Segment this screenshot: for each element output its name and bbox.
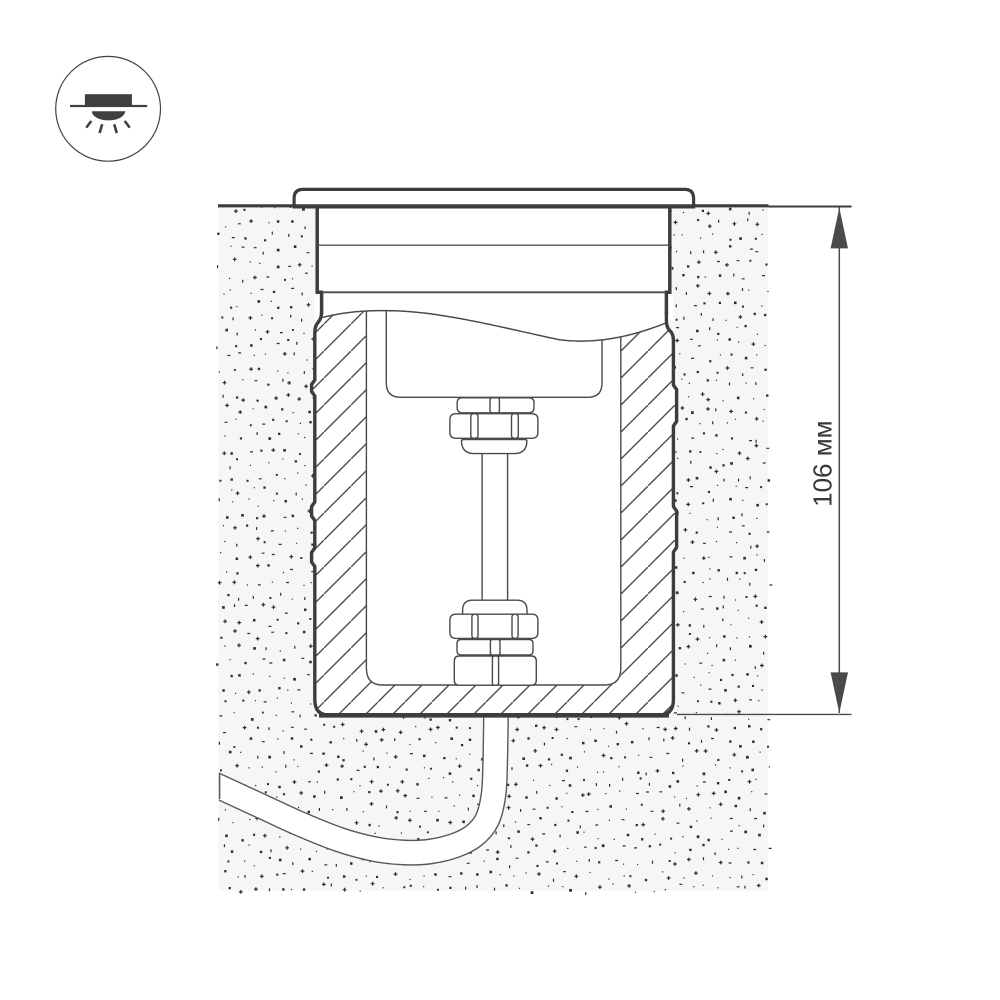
svg-text:106 мм: 106 мм [808, 421, 838, 507]
